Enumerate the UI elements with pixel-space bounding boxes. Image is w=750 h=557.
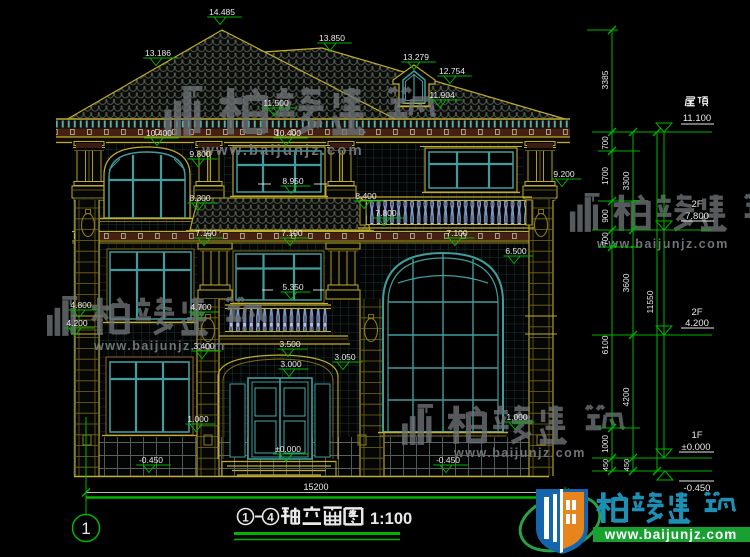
svg-text:1: 1 bbox=[242, 511, 249, 525]
svg-text:700: 700 bbox=[601, 136, 610, 150]
svg-text:1700: 1700 bbox=[601, 167, 610, 185]
svg-text:7.800: 7.800 bbox=[685, 211, 709, 222]
svg-text:1000: 1000 bbox=[601, 435, 610, 453]
svg-text:www.baijunjz.com: www.baijunjz.com bbox=[453, 446, 586, 460]
svg-text:6.500: 6.500 bbox=[505, 246, 527, 256]
svg-text:1F: 1F bbox=[691, 430, 702, 441]
svg-text:1.000: 1.000 bbox=[506, 412, 528, 422]
svg-text:7.100: 7.100 bbox=[195, 228, 217, 238]
svg-text:3300: 3300 bbox=[621, 171, 631, 190]
svg-text:3.400: 3.400 bbox=[193, 341, 215, 351]
svg-text:900: 900 bbox=[601, 209, 610, 223]
svg-text:3.050: 3.050 bbox=[334, 352, 356, 362]
svg-text:2F: 2F bbox=[691, 307, 702, 318]
svg-text:9.200: 9.200 bbox=[553, 169, 575, 179]
svg-text:3.500: 3.500 bbox=[279, 339, 301, 349]
svg-text:700: 700 bbox=[601, 232, 610, 246]
svg-text:1:100: 1:100 bbox=[370, 510, 412, 528]
svg-text:www.baijunjz.com: www.baijunjz.com bbox=[596, 237, 729, 251]
svg-text:11.904: 11.904 bbox=[429, 90, 455, 100]
svg-text:11.500: 11.500 bbox=[263, 98, 289, 108]
svg-text:www.baijunjz.com: www.baijunjz.com bbox=[604, 527, 738, 542]
svg-text:-0.450: -0.450 bbox=[436, 455, 460, 465]
svg-text:11550: 11550 bbox=[645, 290, 655, 313]
svg-text:7.800: 7.800 bbox=[375, 208, 397, 218]
svg-text:4.800: 4.800 bbox=[70, 300, 92, 310]
svg-text:2F: 2F bbox=[691, 199, 702, 210]
svg-text:3385: 3385 bbox=[600, 70, 610, 89]
svg-text:10.400: 10.400 bbox=[146, 128, 172, 138]
svg-text:1.000: 1.000 bbox=[187, 414, 209, 424]
svg-text:11.100: 11.100 bbox=[683, 113, 711, 124]
svg-text:3.000: 3.000 bbox=[280, 359, 302, 369]
svg-text:4.200: 4.200 bbox=[685, 318, 709, 329]
svg-text:13.279: 13.279 bbox=[403, 52, 429, 62]
svg-text:3600: 3600 bbox=[621, 273, 631, 292]
svg-text:-0.450: -0.450 bbox=[139, 455, 163, 465]
svg-text:450: 450 bbox=[601, 459, 610, 472]
svg-text:8.400: 8.400 bbox=[355, 191, 377, 201]
svg-text:13.850: 13.850 bbox=[319, 33, 345, 43]
svg-text:10.400: 10.400 bbox=[275, 128, 301, 138]
svg-text:4: 4 bbox=[267, 511, 274, 525]
svg-text:4.200: 4.200 bbox=[66, 318, 88, 328]
svg-text:9.800: 9.800 bbox=[189, 149, 211, 159]
svg-text:±0.000: ±0.000 bbox=[682, 442, 711, 453]
svg-text:15200: 15200 bbox=[303, 482, 328, 492]
svg-text:1: 1 bbox=[81, 519, 90, 538]
svg-text:4200: 4200 bbox=[621, 387, 631, 406]
svg-text:8.300: 8.300 bbox=[189, 193, 211, 203]
svg-text:13.186: 13.186 bbox=[145, 48, 171, 58]
svg-text:±0.000: ±0.000 bbox=[275, 444, 301, 454]
svg-text:5.350: 5.350 bbox=[282, 282, 304, 292]
svg-text:14.485: 14.485 bbox=[209, 7, 235, 17]
svg-text:7.100: 7.100 bbox=[446, 228, 468, 238]
svg-text:7.100: 7.100 bbox=[281, 228, 303, 238]
svg-text:12.754: 12.754 bbox=[439, 66, 465, 76]
svg-text:6100: 6100 bbox=[600, 335, 610, 354]
svg-text:www.baijunjz.com: www.baijunjz.com bbox=[201, 142, 363, 159]
svg-text:8.950: 8.950 bbox=[282, 176, 304, 186]
svg-text:4.700: 4.700 bbox=[190, 302, 212, 312]
svg-text:450: 450 bbox=[622, 459, 631, 472]
